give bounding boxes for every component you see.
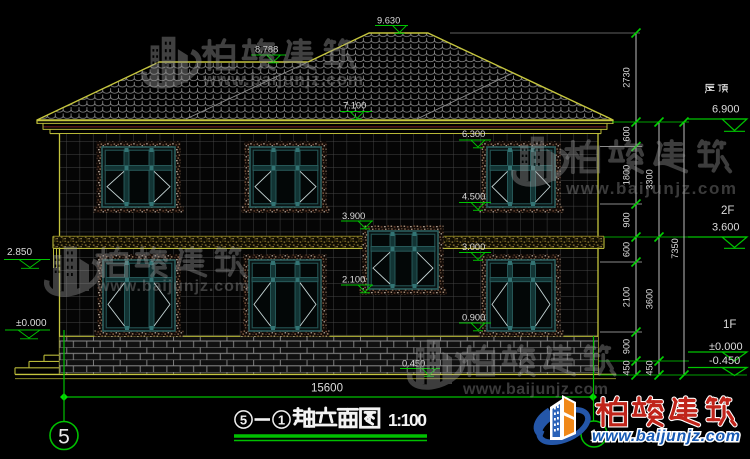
svg-text:www.baijunjz.com: www.baijunjz.com bbox=[96, 278, 249, 295]
svg-text:450: 450 bbox=[622, 360, 632, 375]
svg-text:3.600: 3.600 bbox=[712, 222, 740, 234]
svg-text:450: 450 bbox=[645, 360, 655, 375]
svg-text:9.630: 9.630 bbox=[377, 16, 400, 26]
svg-text:7350: 7350 bbox=[670, 238, 680, 258]
svg-text:4.500: 4.500 bbox=[462, 192, 485, 202]
svg-text:6.300: 6.300 bbox=[462, 129, 485, 139]
svg-text:15600: 15600 bbox=[311, 383, 343, 395]
svg-text:2.100: 2.100 bbox=[342, 275, 365, 285]
svg-text:0.900: 0.900 bbox=[462, 313, 485, 323]
svg-text:www.baijunjz.com: www.baijunjz.com bbox=[462, 381, 608, 398]
svg-text:2F: 2F bbox=[721, 205, 734, 217]
svg-text:1F: 1F bbox=[723, 319, 736, 331]
svg-text:www.baijunjz.com: www.baijunjz.com bbox=[202, 70, 363, 89]
svg-text:-0.450: -0.450 bbox=[709, 355, 740, 367]
svg-text:900: 900 bbox=[622, 339, 632, 354]
svg-text:2730: 2730 bbox=[622, 67, 632, 87]
svg-text:5: 5 bbox=[240, 413, 247, 428]
svg-text:600: 600 bbox=[622, 242, 632, 257]
svg-text:3600: 3600 bbox=[645, 289, 655, 309]
svg-text:2100: 2100 bbox=[622, 287, 632, 307]
svg-text:±0.000: ±0.000 bbox=[16, 318, 47, 329]
svg-text:3.000: 3.000 bbox=[462, 242, 485, 252]
svg-text:2.850: 2.850 bbox=[7, 247, 32, 258]
svg-text:6.900: 6.900 bbox=[712, 104, 740, 116]
svg-text:www.baijunjz.com: www.baijunjz.com bbox=[565, 179, 736, 198]
svg-text:www.baijunjz.com: www.baijunjz.com bbox=[592, 428, 740, 445]
svg-text:1:100: 1:100 bbox=[388, 410, 427, 430]
svg-text:1: 1 bbox=[278, 413, 285, 428]
svg-text:5: 5 bbox=[58, 426, 70, 449]
svg-text:3.900: 3.900 bbox=[342, 211, 365, 221]
svg-text:7.100: 7.100 bbox=[343, 101, 366, 111]
svg-text:±0.000: ±0.000 bbox=[709, 341, 743, 353]
svg-text:900: 900 bbox=[622, 212, 632, 227]
